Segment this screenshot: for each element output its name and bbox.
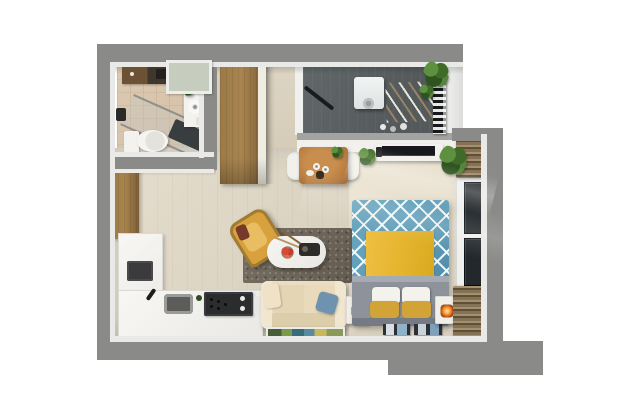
kitchen-sink [164, 294, 193, 314]
detergent-bottle [380, 124, 386, 130]
wall-bottom-right [388, 341, 543, 375]
countertop-appliance [127, 261, 153, 281]
throw-blanket [261, 283, 281, 309]
washer-drum [363, 98, 374, 109]
wall-right-stub [452, 128, 503, 141]
wall-face [481, 134, 487, 342]
table-plant [331, 146, 343, 158]
plate [306, 170, 314, 176]
shelf-item [130, 72, 134, 76]
wall-face [112, 152, 214, 157]
media-device [376, 147, 382, 157]
console-plant [358, 147, 376, 166]
bed-throw-yellow [366, 231, 434, 277]
wardrobe-shade [220, 158, 266, 184]
teapot [316, 171, 324, 179]
wall-niche [166, 60, 212, 94]
flower-bowl [280, 246, 295, 259]
bed-pillow-yellow [370, 301, 399, 318]
tray-item [302, 246, 308, 252]
balcony-plant [419, 84, 434, 99]
wall-face [112, 336, 392, 342]
magazine [414, 324, 442, 335]
sofa [261, 281, 346, 329]
corner-plant [439, 144, 467, 176]
cooktop-dot [240, 296, 245, 301]
bottle [196, 295, 202, 301]
cup [313, 163, 320, 170]
cooktop-dot [240, 306, 245, 311]
entry-cabinet [112, 168, 139, 239]
washing-machine [354, 77, 384, 109]
floorplan-render [0, 0, 640, 400]
cooktop [204, 292, 253, 316]
wall-bathroom-bottom [97, 156, 217, 170]
cooktop-knobs [210, 298, 213, 301]
lamp-glow [441, 305, 454, 318]
shower-head [116, 108, 126, 121]
wardrobe [220, 64, 266, 184]
wall-bottom-left [97, 341, 392, 360]
tv [382, 146, 435, 156]
magazine [383, 324, 410, 335]
wall-face [110, 62, 115, 342]
wall-right [486, 128, 503, 346]
detergent-bottle [400, 123, 407, 130]
table-tray [299, 243, 320, 256]
wardrobe-shadow [266, 66, 275, 184]
bed-pillow-yellow [402, 301, 431, 318]
toilet-bowl [137, 130, 168, 152]
wall-face [390, 336, 486, 342]
detergent-bottle [390, 126, 396, 132]
wall-face [112, 169, 214, 173]
